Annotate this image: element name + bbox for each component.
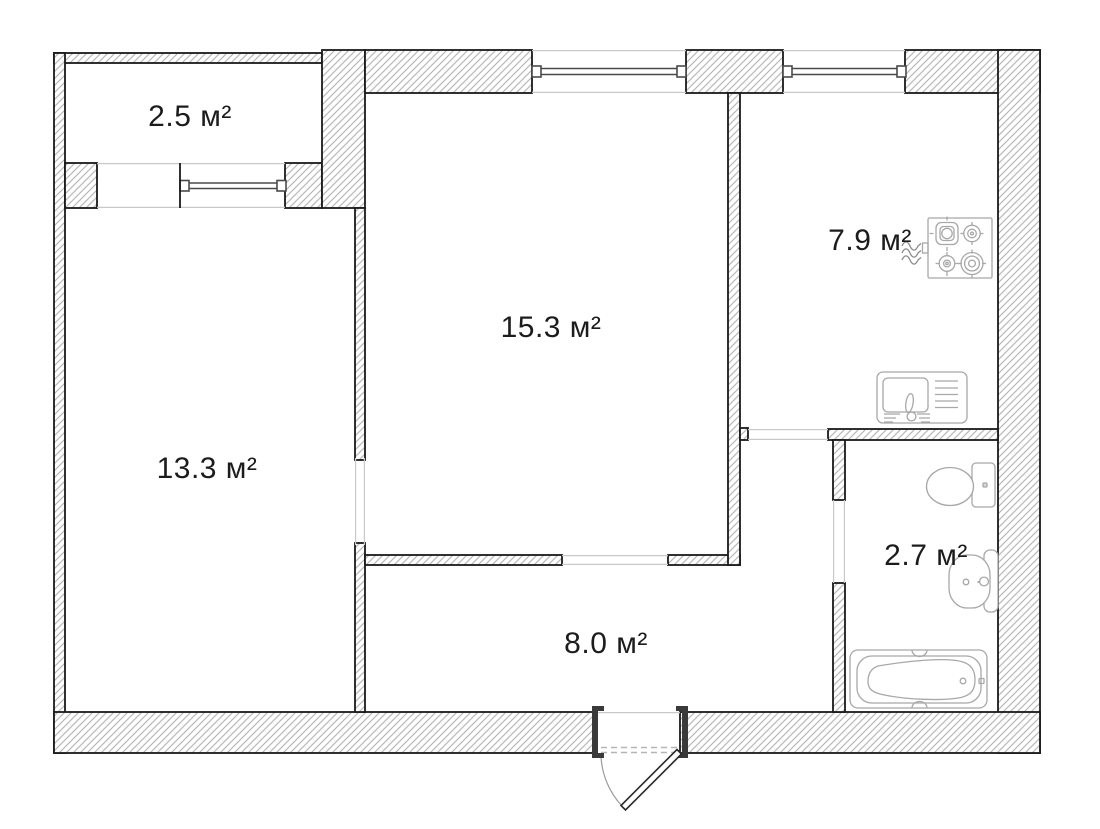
balcony-wall-stub-right (285, 163, 322, 208)
kitchen-bathroom-wall (828, 429, 998, 440)
door-leaf (621, 750, 682, 811)
top-wall-segment-b (686, 50, 783, 93)
floor-plan-canvas: 2.5 м² 15.3 м² 7.9 м² 13.3 м² 2.7 м² 8.0… (0, 0, 1100, 829)
room-label-bathroom: 2.7 м² (884, 539, 968, 572)
balcony-top-wall (54, 53, 322, 63)
living-room-window-icon (532, 66, 686, 77)
entrance-door-icon (592, 706, 688, 810)
room-label-hallway: 8.0 м² (564, 627, 648, 660)
bedroom-wall-upper (355, 208, 365, 460)
kitchen-sink-icon (877, 372, 967, 423)
bathroom-wall-lower (833, 583, 845, 712)
bedroom-wall-lower (355, 543, 365, 712)
bottom-wall-right (680, 712, 1040, 753)
door-jamb-left (592, 706, 604, 758)
door-swing-arc (601, 756, 622, 806)
room-label-bedroom: 13.3 м² (157, 452, 258, 485)
left-outer-wall (54, 53, 65, 753)
kitchen-left-wall (728, 93, 740, 565)
top-left-wall-block (322, 50, 365, 208)
bottom-wall-left (54, 712, 597, 753)
right-outer-wall (998, 50, 1040, 753)
kitchen-window-icon (783, 66, 906, 77)
room-label-living-room: 15.3 м² (501, 311, 602, 344)
room-label-balcony: 2.5 м² (148, 100, 232, 133)
stove-icon (923, 217, 993, 279)
walls-layer (54, 50, 1040, 753)
room-label-kitchen: 7.9 м² (828, 224, 912, 257)
balcony-wall-stub-left (65, 163, 97, 208)
bathroom-wall-upper (833, 440, 845, 500)
top-wall-segment-a (365, 50, 532, 93)
bathtub-icon (850, 650, 987, 708)
toilet-icon (927, 463, 996, 507)
kitchen-doorway-stub (740, 428, 748, 440)
opening-lines-layer (97, 51, 905, 713)
hallway-top-wall-a (365, 555, 562, 565)
floor-plan-drawing: 2.5 м² 15.3 м² 7.9 м² 13.3 м² 2.7 м² 8.0… (0, 0, 1100, 829)
balcony-window-icon (180, 163, 286, 208)
